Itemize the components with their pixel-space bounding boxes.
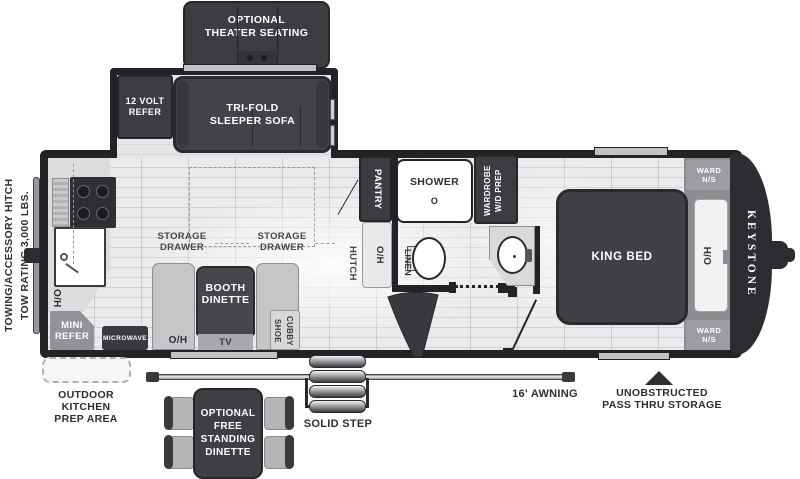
outdoor-line1: OUTDOOR [58,389,114,401]
storage-drawer-label-left: STORAGE DRAWER [149,231,215,253]
slide-latch-bottom [330,125,335,146]
floorplan-canvas: TOWING/ACCESSORY HITCH TOW RATING 3,000 … [0,0,800,479]
booth-overhead-label: O/H [158,335,198,346]
shoe-cubby-line1: SHOE [271,313,283,349]
bedroom-overhead-cabinet: O/H [694,199,728,312]
shoe-cubby: SHOE CUBBY [270,310,300,350]
stove-burner-3 [77,207,90,220]
stove-burner-1 [77,185,90,198]
outdoor-kitchen-label: OUTDOOR KITCHEN PREP AREA [34,389,138,425]
wardrobe-wd-prep: WARDROBE W/D PREP [474,155,518,224]
optional-theater-seating: OPTIONAL THEATER SEATING [183,1,330,69]
ward-bottom-line1: WARD [697,326,722,335]
sofa-armrest-right [316,81,328,148]
twelve-volt-refer: 12 VOLT REFER [117,75,173,139]
step-tread-1 [309,355,366,368]
sofa-line2: SLEEPER SOFA [210,115,295,128]
chair-back [285,435,294,469]
wardrobe-line1: WARDROBE [482,161,493,221]
sink-drain-icon [513,255,516,258]
pantry-label: PANTRY [368,163,383,215]
outdoor-line3: PREP AREA [54,413,117,425]
storage-dash-right [315,243,335,244]
dinette-chair-bottom-left [166,436,194,469]
faucet-lever [65,263,78,273]
ward-ns-top: WARD N/S [686,160,732,190]
refer12-line1: 12 VOLT [126,96,165,107]
ward-top-line2: N/S [702,175,716,184]
storage-left-line2: DRAWER [160,242,204,253]
hutch-label: HUTCH [342,234,358,292]
pass-thru-arrow-icon [645,371,673,385]
bedroom-overhead-notch [723,250,729,264]
ward-bottom-line2: N/S [702,335,716,344]
step-tread-4 [309,400,366,413]
theater-line2: THEATER SEATING [205,27,309,40]
stove-burner-2 [96,185,109,198]
slide-latch-top [330,99,335,120]
dinette-chair-top-left [166,397,194,430]
stove-burner-4 [96,207,109,220]
keystone-logo: KEYSTONE [745,210,757,298]
sofa-armrest-left [177,81,189,148]
hutch-overhead-label: O/H [369,233,385,277]
shower-label: SHOWER [410,176,459,188]
chair-back [164,435,173,469]
storage-right-line2: DRAWER [260,242,304,253]
bedroom-door-jamb [503,348,512,357]
solid-step [309,355,366,415]
mini-refer-line2: REFER [55,331,89,342]
storage-right-line1: STORAGE [258,231,307,242]
wardrobe-line2: W/D PREP [493,161,504,221]
dinette-chair-top-right [264,397,292,430]
booth-line2: DINETTE [202,294,250,306]
pantry: PANTRY [359,156,392,222]
stove-side-panel [52,178,69,227]
entry-door [386,289,440,357]
awning-label: 16' AWNING [500,388,590,400]
mini-refer-line1: MINI [61,320,83,331]
ward-ns-bottom: WARD N/S [686,320,732,350]
sofa-seam-2 [300,107,301,147]
hutch-cabinet: O/H [362,222,392,288]
outdoor-kitchen-area [42,357,131,383]
faucet-icon [60,253,68,261]
ward-top-line1: WARD [697,166,722,175]
dinette-line1: OPTIONAL [201,407,256,420]
microwave: MICROWAVE [102,326,148,350]
wardrobe-label: WARDROBE W/D PREP [482,161,514,221]
theater-seam-2 [277,7,278,65]
vanity-faucet-icon [525,249,532,262]
hitch-pin-nub [786,248,795,262]
pass-thru-label: UNOBSTRUCTED PASS THRU STORAGE [592,387,732,411]
booth-line1: BOOTH [206,282,246,294]
towing-hitch-line1: TOWING/ACCESSORY HITCH [1,146,17,364]
dinette-line4: DINETTE [205,446,251,459]
awning-end-cap-left [146,372,159,382]
outdoor-line2: KITCHEN [62,401,111,413]
dinette-line3: STANDING [201,433,256,446]
stove [70,177,116,228]
storage-dash-mid [215,243,249,244]
slide-window [183,64,317,72]
pass-thru-line2: PASS THRU STORAGE [602,399,722,411]
bath-door-jamb-2 [508,287,517,297]
bath-pocket-door-dotted [455,285,499,288]
counter-edge-dashed [73,164,74,264]
theater-cupholder-1 [247,55,253,61]
refer12-line2: REFER [129,107,162,118]
storage-drawer-label-right: STORAGE DRAWER [249,231,315,253]
toilet [412,237,446,280]
tv: TV [198,334,253,350]
solid-step-label: SOLID STEP [298,418,378,430]
tri-fold-sleeper-sofa: TRI-FOLD SLEEPER SOFA [173,76,332,153]
awning-end-cap-right [562,372,575,382]
vanity-sink [497,236,528,274]
theater-cupholder-2 [261,55,267,61]
pass-thru-line1: UNOBSTRUCTED [616,387,708,399]
booth-dinette-table: BOOTH DINETTE [196,266,255,336]
bath-door-jamb-1 [449,282,456,293]
bedroom-window-top [594,147,668,156]
sofa-line1: TRI-FOLD [226,102,278,115]
shower-drain-icon: O [431,196,438,206]
king-bed: KING BED [556,189,688,325]
dinette-line2: FREE [214,420,242,433]
chair-back [164,396,173,430]
shower: SHOWER O [396,159,473,223]
dinette-chair-bottom-right [264,436,292,469]
chair-back [285,396,294,430]
step-tread-3 [309,385,366,398]
theater-console [238,51,277,65]
bedroom-overhead-label: O/H [703,234,721,278]
step-tread-2 [309,370,366,383]
bedroom-window-bottom [598,352,670,360]
shoe-cubby-line2: CUBBY [283,313,295,349]
linen-label: LINEN [399,240,413,284]
front-cap: KEYSTONE [730,153,772,355]
free-standing-dinette-table: OPTIONAL FREE STANDING DINETTE [193,388,263,479]
dinette-window-bottom [170,351,278,359]
storage-left-line1: STORAGE [158,231,207,242]
